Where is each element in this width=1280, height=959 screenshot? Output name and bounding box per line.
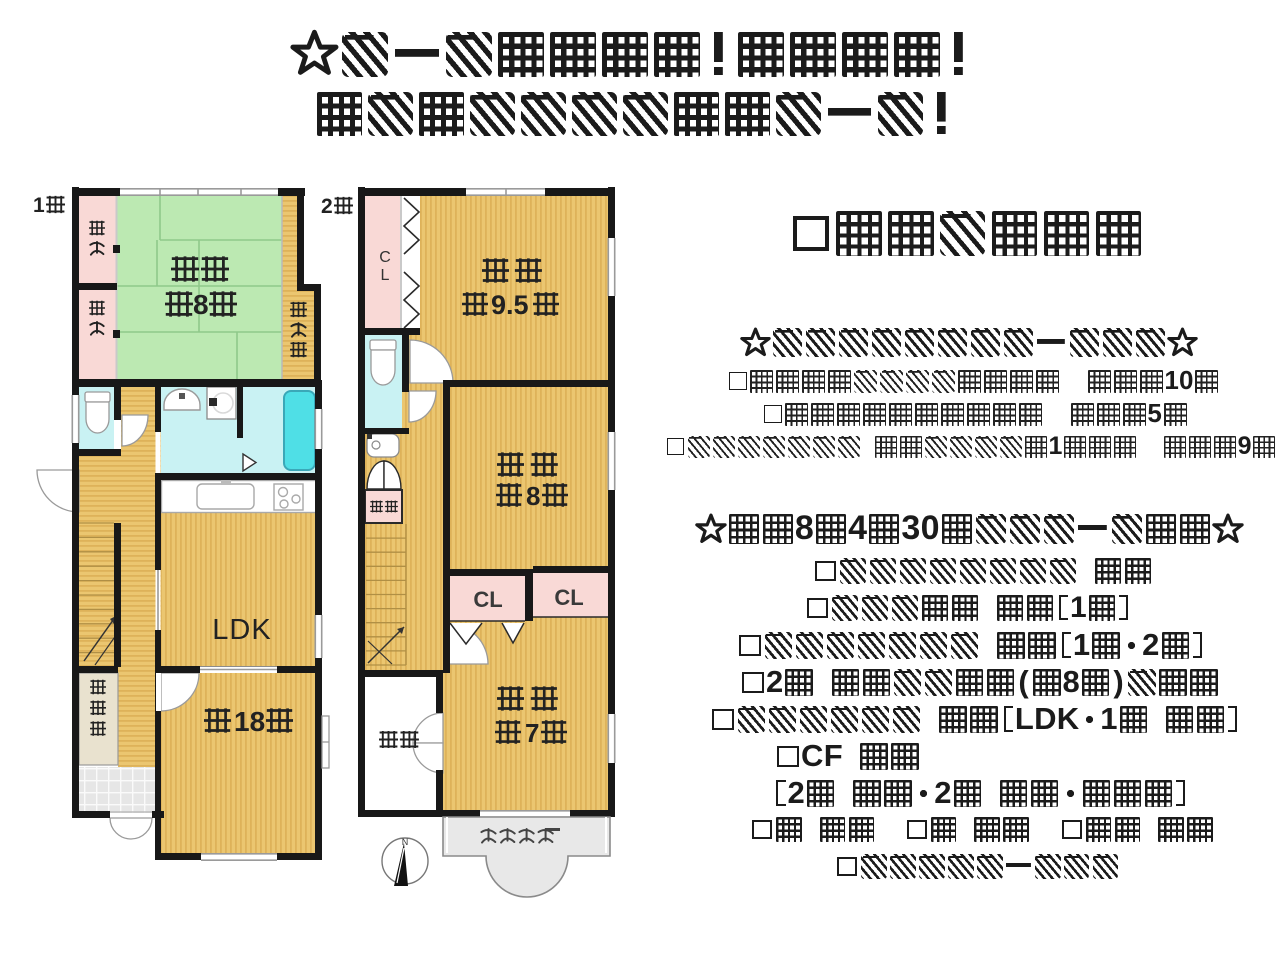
svg-text:8: 8	[526, 481, 540, 511]
svg-text:9.5: 9.5	[491, 290, 529, 320]
svg-text:18: 18	[234, 706, 265, 737]
svg-text:L: L	[381, 267, 390, 284]
svg-text:CL: CL	[473, 587, 502, 612]
svg-text:N: N	[402, 837, 409, 847]
svg-text:2: 2	[321, 195, 333, 218]
svg-text:C: C	[379, 249, 391, 266]
svg-text:CL: CL	[554, 585, 583, 610]
svg-text:LDK: LDK	[212, 614, 271, 646]
svg-text:1: 1	[33, 194, 45, 217]
svg-text:7: 7	[525, 718, 539, 748]
svg-text:8: 8	[193, 289, 209, 320]
